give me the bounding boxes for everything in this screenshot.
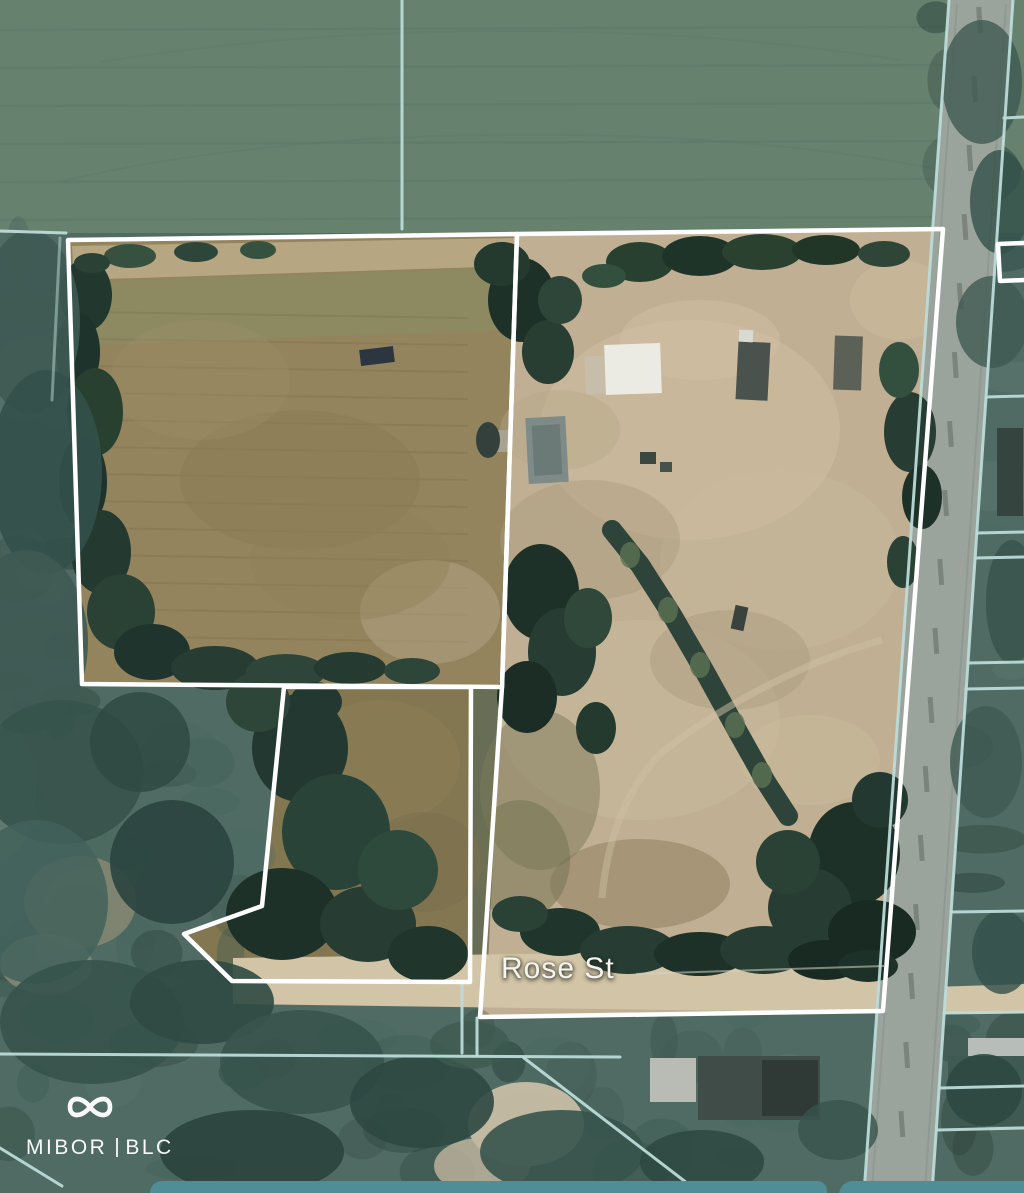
street-label: Rose St	[501, 952, 615, 986]
watermark-wordmark: MIBORBLC	[26, 1136, 154, 1160]
aerial-map-viewport[interactable]: Rose St MIBORBLC	[0, 0, 1024, 1193]
brand-divider	[116, 1138, 118, 1157]
bottom-sheet-card-edge[interactable]	[150, 1181, 827, 1193]
bottom-sheet-card-edge-2[interactable]	[839, 1181, 1024, 1193]
infinity-icon	[50, 1084, 130, 1130]
brand-mibor: MIBOR	[26, 1136, 107, 1159]
brand-blc: BLC	[125, 1136, 173, 1159]
mibor-blc-watermark: MIBORBLC	[26, 1084, 154, 1160]
satellite-imagery	[0, 0, 1024, 1193]
